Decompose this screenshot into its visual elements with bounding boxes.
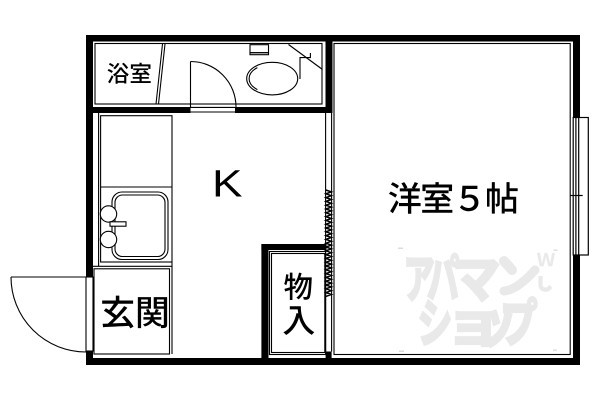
svg-text:K: K xyxy=(212,164,243,206)
